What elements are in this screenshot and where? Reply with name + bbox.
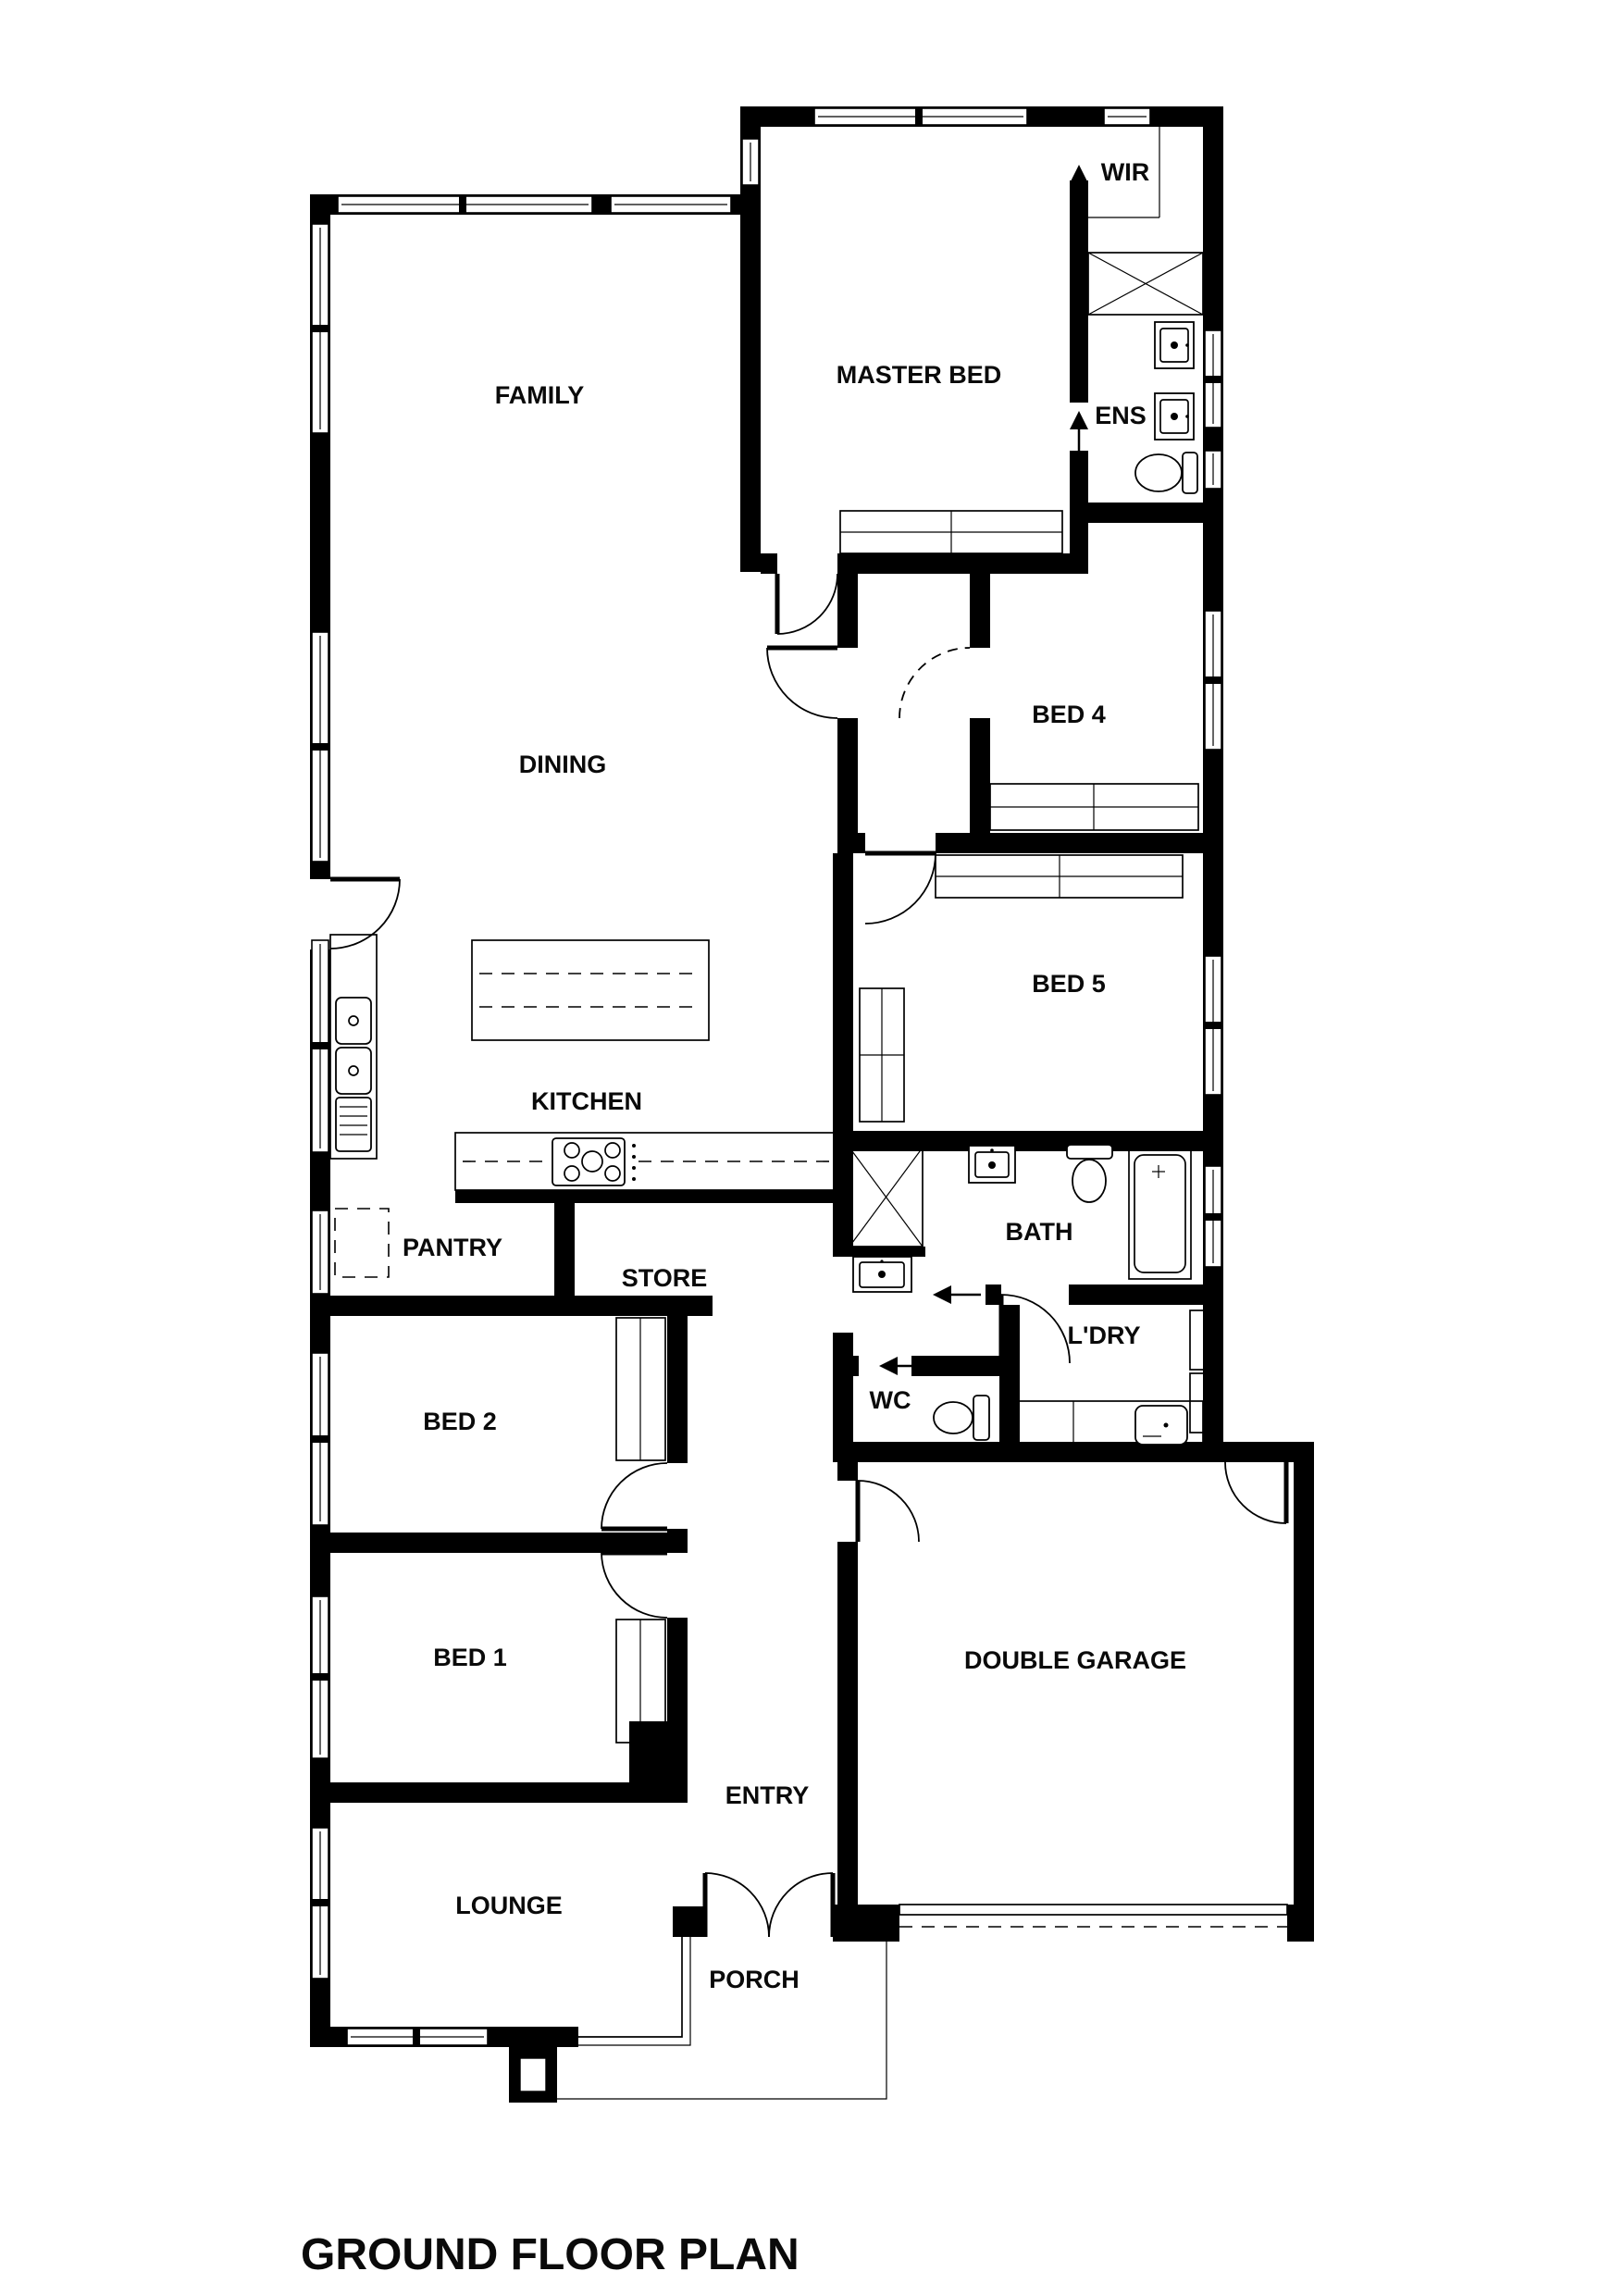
room-label-garage: DOUBLE GARAGE — [964, 1646, 1186, 1674]
plan-background — [0, 0, 1624, 2296]
window-pantry-left — [312, 1210, 329, 1294]
porch-pillar — [509, 2047, 557, 2103]
room-label-ens: ENS — [1095, 402, 1147, 429]
room-label-dining: DINING — [519, 751, 607, 778]
kitchen-sink — [336, 998, 371, 1151]
plan-title: GROUND FLOOR PLAN — [301, 2230, 800, 2279]
window-wir-top — [1104, 108, 1150, 125]
room-label-lounge: LOUNGE — [455, 1892, 563, 1919]
window-dining-left — [310, 632, 330, 862]
hall-vanity — [853, 1257, 911, 1292]
room-label-pantry: PANTRY — [403, 1234, 502, 1261]
window-bed4-right — [1203, 611, 1223, 750]
room-label-master-bed: MASTER BED — [837, 361, 1002, 389]
bath-vanity — [969, 1146, 1015, 1183]
window-master-top — [814, 106, 1027, 127]
room-label-store: STORE — [622, 1264, 708, 1292]
window-family-top-2 — [611, 196, 731, 213]
window-master-step — [742, 139, 759, 185]
window-family-left — [310, 224, 330, 433]
room-label-wc: WC — [870, 1386, 911, 1414]
window-bed1-left — [310, 1596, 330, 1758]
window-family-top-1 — [338, 194, 592, 215]
window-ens-right — [1203, 330, 1223, 428]
window-lounge-left — [310, 1828, 330, 1979]
room-label-porch: PORCH — [709, 1966, 800, 1993]
floor-plan-page: FAMILY DINING KITCHEN PANTRY STORE MASTE… — [0, 0, 1624, 2296]
window-bed2-left — [310, 1353, 330, 1525]
room-label-kitchen: KITCHEN — [531, 1087, 642, 1115]
room-label-bed1: BED 1 — [433, 1644, 507, 1671]
room-label-family: FAMILY — [495, 381, 585, 409]
room-label-laundry: L'DRY — [1068, 1322, 1141, 1349]
ens-vanity-1 — [1155, 322, 1194, 368]
room-label-bed5: BED 5 — [1032, 970, 1106, 998]
room-label-bed2: BED 2 — [423, 1408, 497, 1435]
window-ens-toilet-right — [1205, 451, 1221, 489]
room-label-entry: ENTRY — [725, 1781, 810, 1809]
cooktop-icon — [552, 1138, 636, 1185]
window-bed5-right — [1203, 956, 1223, 1095]
window-lounge-bottom — [347, 2027, 488, 2047]
ens-vanity-2 — [1155, 393, 1194, 440]
window-bath-right — [1203, 1166, 1223, 1267]
ens-toilet — [1135, 453, 1197, 493]
room-label-bed4: BED 4 — [1032, 701, 1106, 728]
room-label-wir: WIR — [1101, 158, 1149, 186]
laundry-trough — [1135, 1406, 1187, 1445]
room-label-bath: BATH — [1006, 1218, 1073, 1246]
window-kitchen-left — [310, 940, 330, 1152]
floor-plan-canvas: FAMILY DINING KITCHEN PANTRY STORE MASTE… — [0, 0, 1624, 2296]
